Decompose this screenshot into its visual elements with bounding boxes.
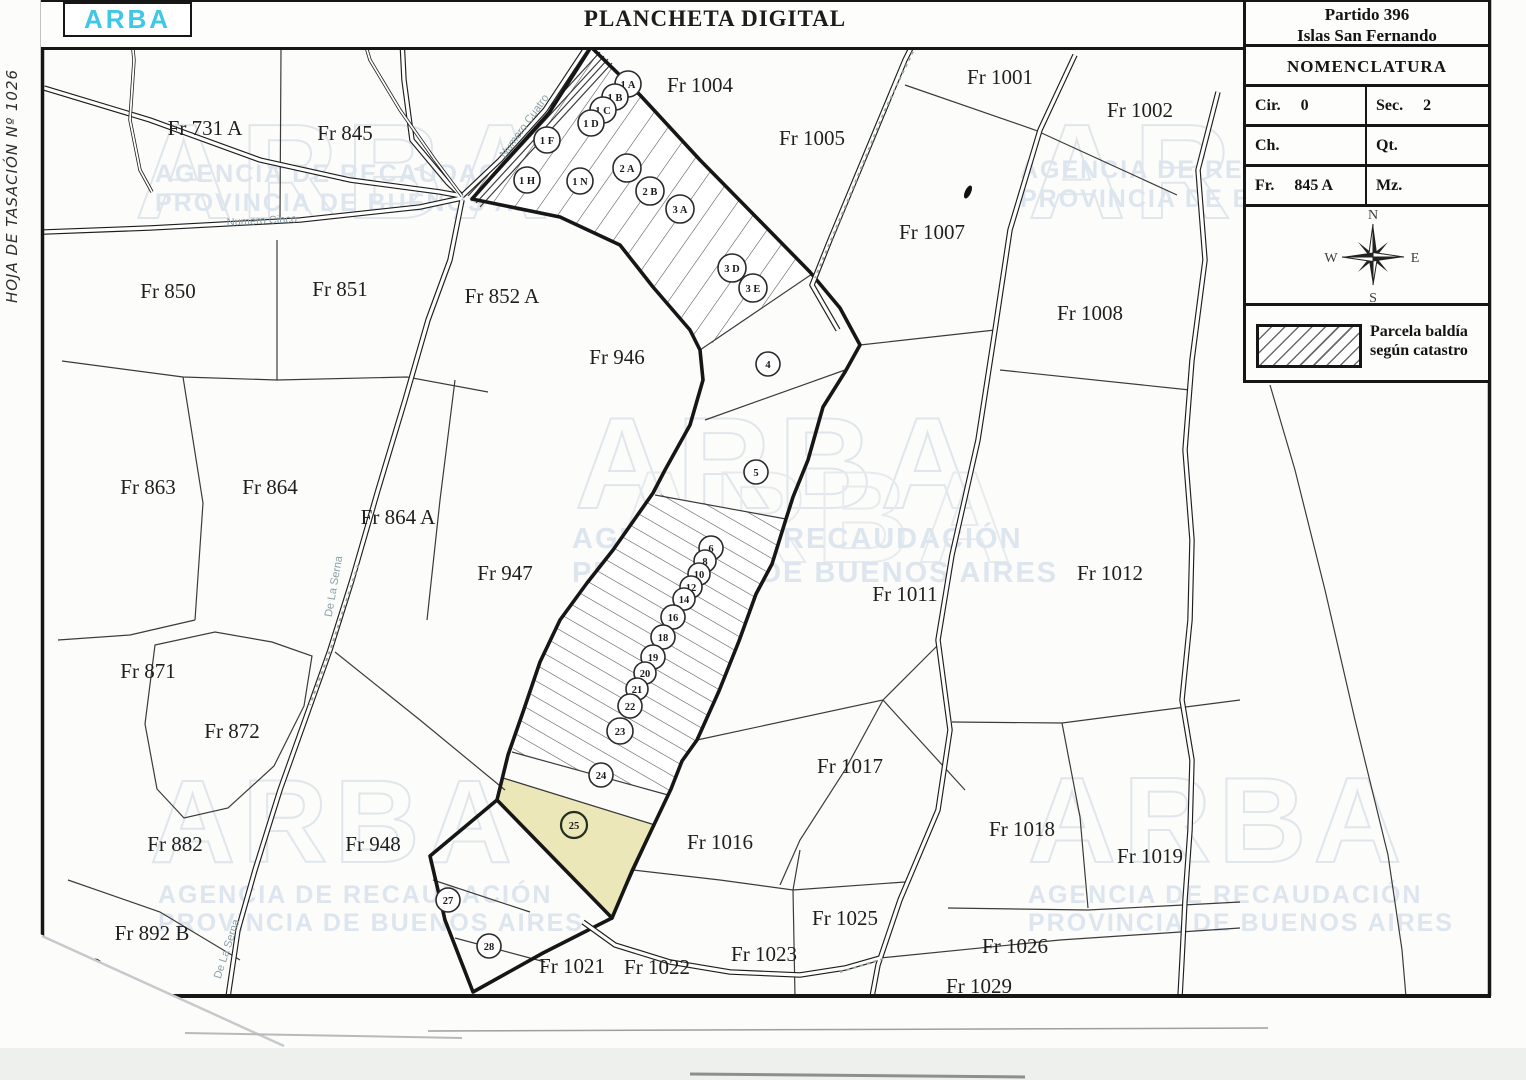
lot-circle: 5 [744,460,768,484]
page-title: PLANCHETA DIGITAL [505,6,925,32]
lot-circle: 3 E [739,274,767,302]
partido-box: Partido 396 Islas San Fernando [1246,2,1488,47]
lot-circle: 1 F [534,127,560,153]
ink-blot [962,184,973,199]
parcel-label: Fr 863 [120,475,175,499]
lot-circle: 23 [607,718,633,744]
parcel-label: Fr 731 A [168,116,244,140]
svg-text:16: 16 [668,613,679,624]
field-label: Sec. [1376,97,1403,114]
parcel-label: Fr 1018 [989,817,1055,841]
hatch-swatch-icon [1256,324,1362,368]
partido-name: Islas San Fernando [1246,25,1488,46]
field-label: Fr. [1255,177,1274,194]
nomenclatura-row: Cir.0 Sec.2 [1246,87,1488,127]
parcel-label: Fr 892 B [115,921,190,945]
parcel-label: Fr 946 [589,345,644,369]
scanned-plancheta-page: ARBA ARBA ARBA ARBA ARBA ARBA AGENCIA DE… [0,0,1526,1080]
lot-circle: 1 D [578,110,604,136]
nomenclatura-row: Fr.845 A Mz. [1246,167,1488,207]
lot-circle: 28 [477,934,501,958]
parcel-label: Fr 1012 [1077,561,1143,585]
arba-logo: ARBA [63,2,192,37]
parcel-label: Fr 1023 [731,942,797,966]
watermark-text: PROVINCIA DE BUENOS AIRES [1028,909,1454,937]
parcel-label: Fr 872 [204,719,259,743]
parcel-label: Fr 1016 [687,830,753,854]
parcel-label: Fr 1002 [1107,98,1173,122]
compass-n: N [1368,208,1378,223]
svg-text:1 N: 1 N [572,177,588,188]
svg-text:14: 14 [679,595,690,606]
parcel-label: Fr 850 [140,279,195,303]
lot-circle: 3 A [666,195,694,223]
svg-text:3 A: 3 A [673,205,688,216]
lot-circle: 2 B [636,177,664,205]
svg-text:1 F: 1 F [540,136,554,147]
legend-label-line2: según catastro [1370,341,1468,360]
field-label: Qt. [1376,137,1398,154]
field-mz: Mz. [1367,167,1488,204]
svg-text:1 H: 1 H [519,176,535,187]
compass-box: N S E W [1246,207,1488,306]
field-value: 0 [1301,97,1309,114]
field-ch: Ch. [1246,127,1367,164]
lot-circle: 24 [589,763,613,787]
svg-text:23: 23 [615,727,626,738]
parcel-label: Fr 1011 [872,582,937,606]
compass-rose-icon: N S E W [1246,207,1492,303]
field-label: Mz. [1376,177,1402,194]
field-fr: Fr.845 A [1246,167,1367,204]
svg-text:3 E: 3 E [746,284,761,295]
header-band: ARBA PLANCHETA DIGITAL [41,0,1243,50]
svg-text:5: 5 [753,468,758,479]
parcel-label: Fr 882 [147,832,202,856]
parcel-label: Fr 1019 [1117,844,1183,868]
nomenclatura-header: NOMENCLATURA [1246,47,1488,87]
field-qt: Qt. [1367,127,1488,164]
parcel-label: Fr 852 A [465,284,541,308]
field-label: Ch. [1255,137,1279,154]
lot-circle: 1 N [567,168,593,194]
parcel-label: Fr 1017 [817,754,883,778]
parcel-label: Fr 1022 [624,955,690,979]
field-value: 2 [1423,97,1431,114]
field-value: 845 A [1294,177,1333,194]
svg-text:27: 27 [443,896,454,907]
lot-circle: 1 H [514,167,540,193]
svg-text:1 D: 1 D [583,119,599,130]
watermark-text: PROVINCIA DE BUENOS AIRES [158,909,584,937]
parcel-label: Fr 1004 [667,73,733,97]
parcel-label: Fr 864 A [361,505,437,529]
hatched-area-middle [512,493,786,795]
compass-e: E [1411,251,1420,266]
lot-circle: 27 [436,888,460,912]
parcel-label: Fr 947 [477,561,532,585]
lot-circle-highlighted: 25 [561,812,587,838]
svg-text:22: 22 [625,702,636,713]
partido-number: Partido 396 [1246,4,1488,25]
parcel-label: Fr 1008 [1057,301,1123,325]
svg-text:25: 25 [569,821,580,832]
lot-circle: 22 [618,694,642,718]
parcel-label: Fr 851 [312,277,367,301]
svg-text:4: 4 [765,360,771,371]
compass-w: W [1324,251,1338,266]
watermark-text: ARBA [150,756,519,888]
parcel-label: Fr 1001 [967,65,1033,89]
parcel-label: Fr 1025 [812,906,878,930]
lot-circle: 3 D [718,254,746,282]
svg-text:18: 18 [658,633,669,644]
field-cir: Cir.0 [1246,87,1367,124]
nomenclatura-row: Ch. Qt. [1246,127,1488,167]
legend-label-line1: Parcela baldía [1370,322,1468,341]
legend: Parcela baldía según catastro [1246,306,1488,383]
watermark-text: ARBA [1028,752,1408,888]
watermark-text: AGENCIA DE RECAUDACIÓN [158,879,552,909]
info-panel: Partido 396 Islas San Fernando NOMENCLAT… [1243,0,1491,383]
parcel-label: Fr 1005 [779,126,845,150]
parcel-label: Fr 871 [120,659,175,683]
compass-s: S [1369,291,1377,303]
svg-text:2 A: 2 A [620,164,635,175]
field-label: Cir. [1255,97,1281,114]
parcel-label: Fr 1026 [982,934,1048,958]
parcel-label: Fr 1007 [899,220,965,244]
parcel-label: Fr 1021 [539,954,605,978]
field-sec: Sec.2 [1367,87,1488,124]
svg-text:2 B: 2 B [643,187,658,198]
parcel-label: Fr 864 [242,475,298,499]
side-annotation: HOJA DE TASACIÓN Nº 1026 [3,26,25,346]
svg-text:3 D: 3 D [724,264,740,275]
lot-circle: 2 A [613,154,641,182]
svg-text:24: 24 [596,771,607,782]
lot-circle: 4 [756,352,780,376]
parcel-label: Fr 845 [317,121,372,145]
svg-text:28: 28 [484,942,495,953]
parcel-label: Fr 948 [345,832,400,856]
